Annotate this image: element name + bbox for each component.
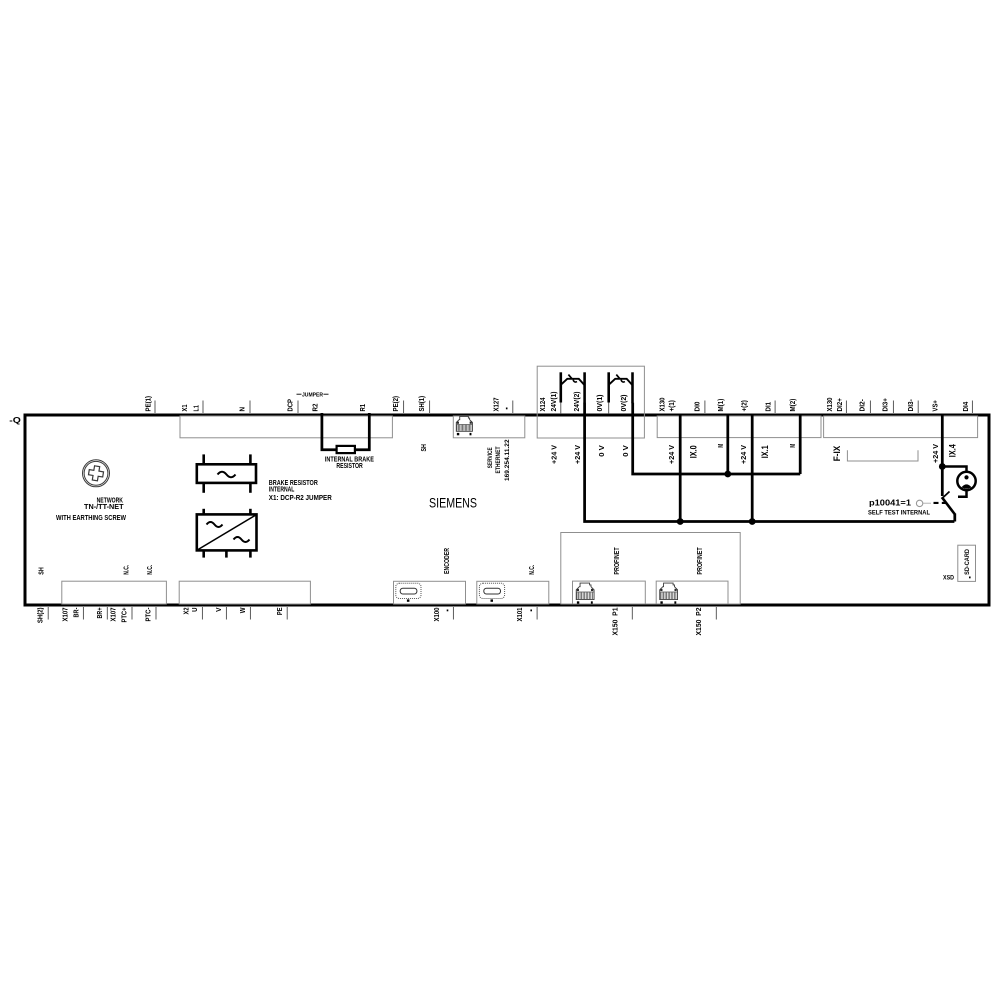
svg-text:0 V: 0 V bbox=[623, 445, 630, 457]
svg-text:DI1: DI1 bbox=[766, 402, 773, 412]
svg-text:DI4: DI4 bbox=[963, 402, 970, 412]
svg-text:SERVICE: SERVICE bbox=[487, 447, 494, 468]
svg-text:TN-/TT-NET: TN-/TT-NET bbox=[84, 504, 124, 511]
svg-text:24V(1): 24V(1) bbox=[551, 392, 558, 412]
svg-text:DI0: DI0 bbox=[694, 401, 701, 411]
svg-text:IX.1: IX.1 bbox=[760, 445, 771, 459]
svg-text:M(1): M(1) bbox=[718, 399, 725, 412]
svg-text:PTC-: PTC- bbox=[146, 607, 153, 622]
svg-text:X130: X130 bbox=[827, 397, 834, 411]
svg-text:X1: X1 bbox=[182, 404, 189, 411]
svg-text:+24 V: +24 V bbox=[741, 445, 748, 464]
svg-text:XSD: XSD bbox=[943, 575, 954, 582]
svg-text:PE: PE bbox=[277, 607, 284, 615]
svg-text:ETHERNET: ETHERNET bbox=[495, 446, 502, 473]
svg-text:U: U bbox=[192, 608, 199, 612]
svg-text:IX.4: IX.4 bbox=[948, 444, 959, 458]
svg-text:X150 P2: X150 P2 bbox=[696, 607, 703, 635]
svg-text:SH(1): SH(1) bbox=[419, 396, 426, 412]
svg-text:N.C.: N.C. bbox=[529, 565, 536, 575]
svg-text:BR-: BR- bbox=[74, 607, 81, 618]
svg-text:PROFINET: PROFINET bbox=[697, 547, 704, 575]
svg-text:SH: SH bbox=[39, 567, 46, 574]
svg-text:24V(2): 24V(2) bbox=[574, 392, 581, 412]
svg-text:DI3-: DI3- bbox=[908, 398, 915, 411]
svg-text:R2: R2 bbox=[312, 403, 319, 411]
svg-text:SELF TEST INTERNAL: SELF TEST INTERNAL bbox=[868, 510, 930, 516]
svg-text:X130: X130 bbox=[660, 397, 667, 411]
svg-text:p10041=1: p10041=1 bbox=[869, 497, 911, 507]
svg-text:0 V: 0 V bbox=[599, 445, 606, 457]
svg-text:VS+: VS+ bbox=[933, 400, 940, 411]
svg-text:X101: X101 bbox=[517, 607, 524, 621]
svg-text:N: N bbox=[240, 407, 247, 412]
svg-text:0V(2): 0V(2) bbox=[621, 395, 628, 412]
svg-text:169.254.11.22: 169.254.11.22 bbox=[504, 439, 511, 481]
svg-text:X150 P1: X150 P1 bbox=[613, 607, 620, 635]
svg-text:DI3+: DI3+ bbox=[883, 398, 890, 411]
svg-text:X1: DCP-R2 JUMPER: X1: DCP-R2 JUMPER bbox=[269, 495, 332, 502]
svg-text:+(1): +(1) bbox=[669, 400, 676, 411]
svg-text:SD-CARD: SD-CARD bbox=[964, 549, 971, 575]
svg-text:SH(2): SH(2) bbox=[37, 608, 44, 624]
svg-text:DCP: DCP bbox=[288, 399, 295, 412]
svg-text:PTC+: PTC+ bbox=[122, 608, 129, 623]
svg-text:+24 V: +24 V bbox=[933, 444, 940, 463]
svg-text:X127: X127 bbox=[494, 397, 501, 411]
svg-text:JUMPER: JUMPER bbox=[302, 393, 323, 399]
svg-text:+24 V: +24 V bbox=[552, 445, 559, 464]
svg-text:PROFINET: PROFINET bbox=[614, 547, 621, 575]
svg-text:X2: X2 bbox=[183, 607, 190, 614]
svg-text:V: V bbox=[216, 607, 223, 612]
svg-text:PE(1): PE(1) bbox=[146, 396, 153, 412]
svg-text:+(2): +(2) bbox=[742, 400, 749, 411]
svg-text:ENCODER: ENCODER bbox=[444, 548, 451, 574]
svg-text:+24 V: +24 V bbox=[575, 445, 582, 464]
svg-text:SH: SH bbox=[421, 444, 428, 451]
svg-text:X124: X124 bbox=[540, 397, 547, 411]
svg-text:PE(2): PE(2) bbox=[393, 396, 400, 412]
svg-text:DI2+: DI2+ bbox=[837, 398, 844, 411]
svg-text:RESISTOR: RESISTOR bbox=[336, 463, 362, 470]
svg-text:-Q: -Q bbox=[9, 416, 21, 425]
svg-text:0V(1): 0V(1) bbox=[597, 395, 604, 412]
svg-text:X107: X107 bbox=[110, 607, 117, 621]
svg-text:DI2-: DI2- bbox=[860, 398, 867, 411]
svg-text:X107: X107 bbox=[62, 607, 69, 621]
svg-text:W: W bbox=[240, 607, 247, 613]
svg-text:INTERNAL: INTERNAL bbox=[269, 486, 295, 493]
svg-text:N.C.: N.C. bbox=[124, 565, 131, 575]
svg-text:M: M bbox=[790, 444, 797, 448]
svg-text:SIEMENS: SIEMENS bbox=[429, 495, 477, 511]
svg-text:IX.0: IX.0 bbox=[689, 445, 700, 458]
svg-text:+24 V: +24 V bbox=[669, 445, 676, 464]
svg-text:N.C.: N.C. bbox=[147, 565, 154, 575]
svg-text:M: M bbox=[718, 444, 725, 448]
svg-text:F-IX: F-IX bbox=[832, 445, 843, 461]
svg-text:BR+: BR+ bbox=[97, 608, 104, 619]
svg-text:X100: X100 bbox=[434, 607, 441, 621]
svg-text:L1: L1 bbox=[193, 405, 200, 411]
svg-text:M(2): M(2) bbox=[790, 399, 797, 412]
svg-text:WITH EARTHING SCREW: WITH EARTHING SCREW bbox=[56, 515, 126, 522]
svg-text:R1: R1 bbox=[360, 404, 367, 412]
